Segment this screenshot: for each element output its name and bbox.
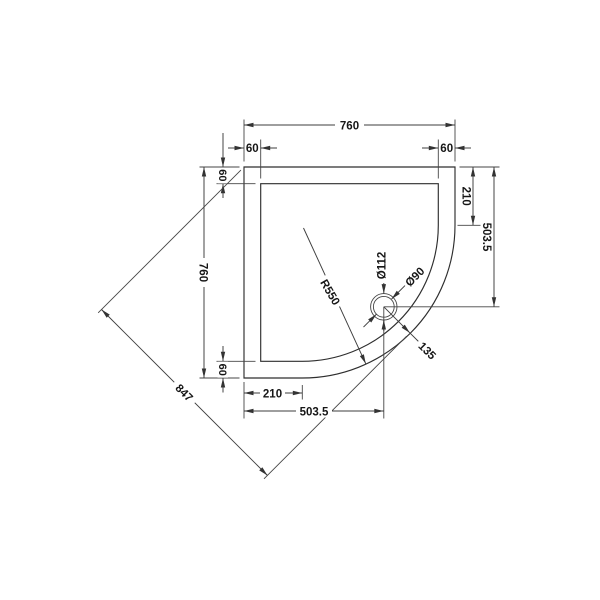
dim-label-top-rim-right: 60	[440, 143, 453, 155]
dim-waste-to-curved-edge: 135	[384, 307, 441, 365]
dim-top-overall-width: 760	[244, 119, 455, 162]
dim-label-bottom-to-waste: 503.5	[300, 406, 329, 418]
dim-label-left-rim-top: 60	[216, 169, 228, 181]
dim-bottom-edge-to-waste: 503.5	[244, 307, 384, 419]
dim-bottom-edge-to-curve: 210	[244, 382, 302, 419]
dim-label-right-to-waste: 503.5	[480, 223, 492, 252]
dim-right-edge-to-waste: 503.5	[384, 167, 500, 307]
dim-label-right-to-curve: 210	[460, 187, 472, 206]
drawing-canvas: 760 60 60 60 760	[0, 0, 600, 600]
dim-top-right-rim: 60	[422, 140, 471, 179]
dim-label-left-overall: 760	[197, 263, 209, 282]
dim-corner-radius: R550	[304, 228, 366, 364]
dim-left-overall-depth: 760	[197, 167, 240, 378]
dim-label-left-rim-bottom: 60	[216, 364, 228, 376]
dim-top-left-rim: 60	[228, 140, 277, 179]
dim-label-waste-flange-dia: Ø112	[376, 252, 388, 280]
dim-diagonal-overall: 847	[98, 170, 406, 479]
dim-left-rim-bottom: 60	[216, 346, 256, 393]
dim-label-top-rim-left: 60	[246, 143, 259, 155]
shower-tray-technical-drawing: 760 60 60 60 760	[0, 0, 600, 600]
dim-right-edge-to-curve: 210	[458, 167, 500, 225]
dim-label-top-overall: 760	[340, 120, 359, 132]
dim-label-bottom-to-curve: 210	[263, 388, 282, 400]
